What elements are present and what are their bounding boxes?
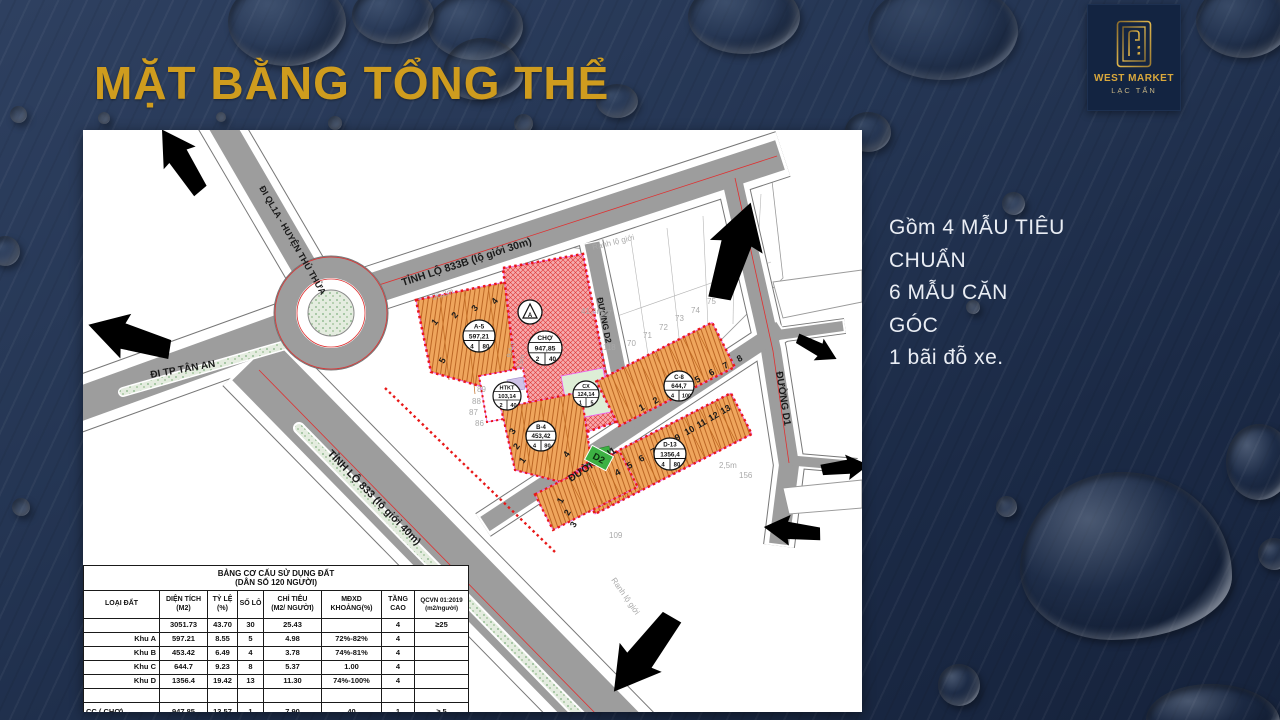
plot-label-c8: C-8 644,7 4 100 <box>664 371 694 401</box>
svg-text:CHỢ: CHỢ <box>537 335 553 342</box>
col-header: MĐXD KHOẢNG(%) <box>322 591 382 619</box>
col-header: QCVN 01:2019 (m2/người) <box>415 591 469 619</box>
col-header: CHỈ TIÊU (M2/ NGƯỜI) <box>264 591 322 619</box>
water-drop <box>352 0 434 44</box>
svg-text:70: 70 <box>627 339 636 348</box>
table-row <box>84 689 469 703</box>
water-drop <box>328 116 342 130</box>
plot-label-d13: D-13 1356,4 4 80 <box>654 438 686 470</box>
brand-logo: WEST MARKET LẠC TẤN <box>1087 4 1181 111</box>
svg-text:73: 73 <box>675 314 684 323</box>
svg-text:156: 156 <box>739 471 753 480</box>
svg-text:40: 40 <box>510 403 516 409</box>
water-drop <box>12 498 30 516</box>
water-drop <box>10 106 27 123</box>
svg-text:A-5: A-5 <box>474 324 485 331</box>
svg-text:2: 2 <box>499 403 502 409</box>
water-drop <box>938 664 980 706</box>
svg-text:89: 89 <box>477 385 486 394</box>
table-row: Khu A597.218.5554.9872%-82%4 <box>84 633 469 647</box>
plot-label-cho: CHỢ 947,85 2 40 <box>528 331 562 365</box>
water-drop <box>98 112 110 124</box>
svg-text:87: 87 <box>469 408 478 417</box>
svg-text:2: 2 <box>536 356 540 363</box>
svg-text:118: 118 <box>603 343 616 352</box>
svg-text:2,5m: 2,5m <box>719 461 737 470</box>
table-row: Khu D1356.419.421311.3074%-100%4 <box>84 675 469 689</box>
svg-text:100: 100 <box>682 394 691 400</box>
svg-text:88: 88 <box>472 397 481 406</box>
table-header-row: LOẠI ĐẤT DIỆN TÍCH (M2) TỶ LỆ (%) SỐ LÔ … <box>84 591 469 619</box>
svg-text:644,7: 644,7 <box>671 383 687 390</box>
col-header: DIỆN TÍCH (M2) <box>160 591 208 619</box>
svg-text:103,14: 103,14 <box>498 394 517 400</box>
svg-text:5: 5 <box>591 400 594 406</box>
svg-text:1: 1 <box>579 400 582 406</box>
svg-text:947,85: 947,85 <box>535 346 556 353</box>
svg-text:4: 4 <box>470 343 474 350</box>
roundabout <box>274 256 388 370</box>
svg-text:B-4: B-4 <box>536 425 546 431</box>
col-header: TỶ LỆ (%) <box>208 591 238 619</box>
logo-sub-text: LẠC TẤN <box>1111 86 1157 95</box>
table-title-row: BẢNG CƠ CẤU SỬ DỤNG ĐẤT(DÂN SỐ 120 NGƯỜI… <box>84 566 469 591</box>
water-drop <box>1196 0 1280 58</box>
svg-text:CX: CX <box>582 384 590 390</box>
svg-text:75: 75 <box>707 297 716 306</box>
svg-text:Ranh lộ giới: Ranh lộ giới <box>609 576 641 617</box>
water-drop <box>1226 424 1280 500</box>
water-drop <box>1258 538 1280 570</box>
svg-text:109: 109 <box>609 531 623 540</box>
svg-text:124,14: 124,14 <box>577 392 595 398</box>
market-symbol-icon: A <box>518 300 542 324</box>
col-header: SỐ LÔ <box>238 591 264 619</box>
table-row: Khu C644.79.2385.371.004 <box>84 661 469 675</box>
table-title: BẢNG CƠ CẤU SỬ DỤNG ĐẤT(DÂN SỐ 120 NGƯỜI… <box>84 566 469 591</box>
slide: MẶT BẰNG TỔNG THỂ WEST MARKET LẠC TẤN Gồ… <box>0 0 1280 720</box>
svg-text:74: 74 <box>691 306 700 315</box>
table-row: CC ( CHỢ)947.8513.5717.90401≥ 5 <box>84 703 469 713</box>
plot-label-a5: A-5 597,21 4 80 <box>463 320 495 352</box>
plot-label-b4: B-4 453,42 4 80 <box>526 421 556 451</box>
water-drop <box>996 496 1017 517</box>
water-drop <box>0 236 20 266</box>
plot-label-cx: CX 124,14 1 5 <box>573 381 599 407</box>
land-use-table: BẢNG CƠ CẤU SỬ DỤNG ĐẤT(DÂN SỐ 120 NGƯỜI… <box>83 565 469 712</box>
water-drop <box>868 0 1018 80</box>
water-drop <box>216 112 226 122</box>
svg-text:453,42: 453,42 <box>532 433 551 440</box>
svg-text:D-13: D-13 <box>663 442 677 449</box>
water-drop <box>1146 684 1280 720</box>
svg-text:71: 71 <box>643 331 652 340</box>
site-plan-panel: 1 2 3 4 5 1 2 3 4 1 2 3 4 5 6 7 8 4 5 6 <box>83 130 862 712</box>
plot-label-htkt: HTKT 103,14 2 40 <box>493 382 521 410</box>
svg-text:117: 117 <box>599 309 612 318</box>
svg-text:72: 72 <box>659 323 668 332</box>
svg-text:597,21: 597,21 <box>469 333 490 340</box>
logo-monogram-icon <box>1116 20 1152 68</box>
side-note: Gồm 4 MẪU TIÊU CHUẨN 6 MẪU CĂN GÓC 1 bãi… <box>889 212 1199 375</box>
col-header: TẦNG CAO <box>382 591 415 619</box>
svg-text:40: 40 <box>549 356 557 363</box>
svg-text:HTKT: HTKT <box>500 386 515 392</box>
svg-text:86: 86 <box>475 419 484 428</box>
table-row: Khu B453.426.4943.7874%-81%4 <box>84 647 469 661</box>
table-row: 3051.7343.703025.434≥25 <box>84 619 469 633</box>
water-drop <box>688 0 800 54</box>
col-header: LOẠI ĐẤT <box>84 591 160 619</box>
svg-text:80: 80 <box>674 462 681 468</box>
svg-text:80: 80 <box>544 444 550 450</box>
svg-text:A: A <box>528 313 533 319</box>
water-drop <box>1020 472 1232 640</box>
page-title: MẶT BẰNG TỔNG THỂ <box>94 56 609 110</box>
svg-text:C-8: C-8 <box>674 375 684 381</box>
logo-brand-text: WEST MARKET <box>1094 73 1174 84</box>
svg-text:80: 80 <box>483 343 490 350</box>
svg-text:1356,4: 1356,4 <box>660 451 680 458</box>
svg-text:3: 3 <box>568 520 579 529</box>
